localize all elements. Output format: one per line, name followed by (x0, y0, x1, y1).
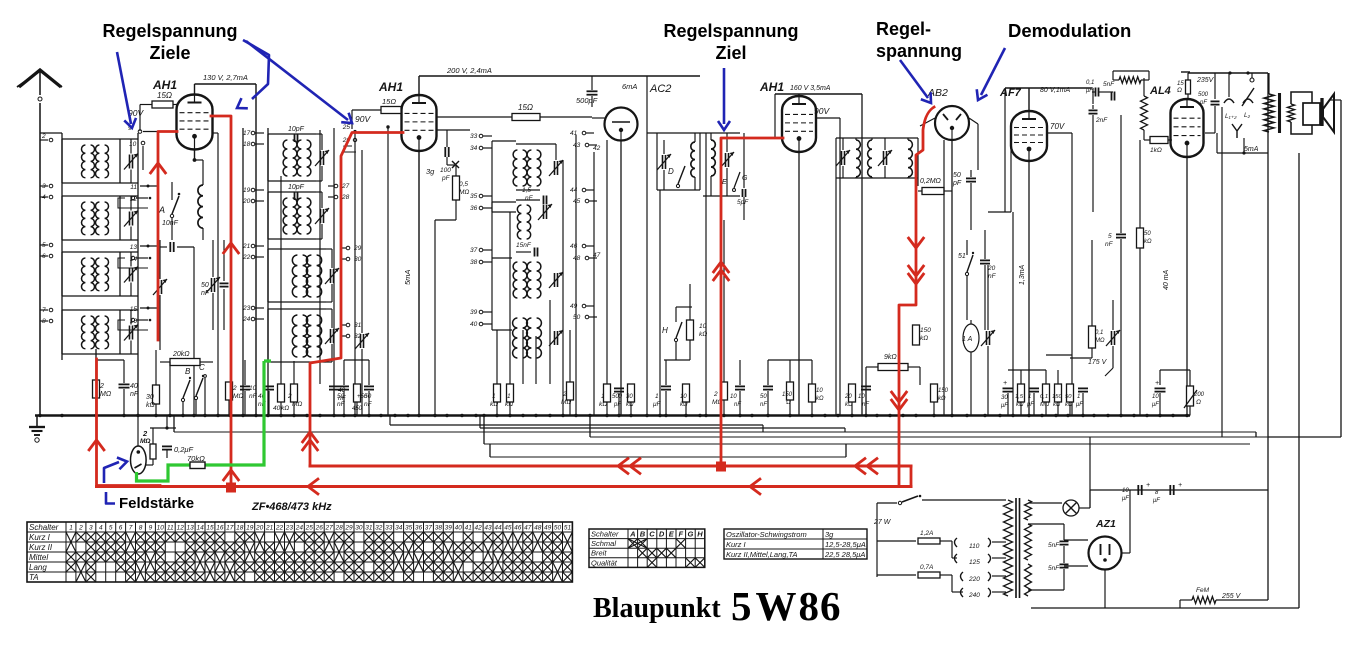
svg-text:11: 11 (167, 525, 174, 532)
svg-text:200: 200 (1193, 392, 1205, 398)
svg-text:D: D (659, 530, 665, 539)
svg-text:50: 50 (953, 172, 961, 179)
svg-text:16: 16 (216, 525, 224, 532)
svg-text:90V: 90V (355, 114, 371, 124)
svg-text:2: 2 (41, 133, 46, 140)
svg-text:1: 1 (69, 525, 73, 532)
svg-text:MΩ: MΩ (1095, 338, 1105, 344)
svg-text:44: 44 (494, 525, 502, 532)
svg-text:3g: 3g (825, 530, 834, 539)
svg-text:pF: pF (613, 402, 621, 408)
svg-text:40 mA: 40 mA (1163, 269, 1170, 290)
svg-text:130 V, 2,7mA: 130 V, 2,7mA (203, 73, 248, 82)
svg-text:41: 41 (465, 525, 473, 532)
svg-text:B: B (185, 367, 191, 376)
svg-text:B: B (640, 530, 646, 539)
svg-text:6: 6 (119, 525, 123, 532)
svg-text:18: 18 (243, 141, 251, 148)
svg-text:G: G (742, 175, 748, 182)
svg-text:1: 1 (655, 393, 659, 400)
svg-text:kΩ: kΩ (1016, 402, 1024, 408)
svg-text:kΩ: kΩ (920, 335, 928, 342)
svg-text:23: 23 (285, 525, 294, 532)
svg-text:AH1: AH1 (152, 78, 177, 92)
svg-text:10: 10 (249, 385, 257, 392)
svg-text:2: 2 (562, 391, 567, 398)
svg-text:μF: μF (1121, 496, 1129, 502)
svg-text:Ω: Ω (1177, 87, 1182, 94)
svg-text:10: 10 (730, 394, 737, 400)
svg-text:pF: pF (1199, 100, 1207, 106)
svg-text:nF: nF (525, 195, 534, 202)
svg-text:150: 150 (782, 392, 793, 398)
svg-text:8: 8 (139, 525, 143, 532)
svg-text:29: 29 (344, 525, 353, 532)
svg-text:34: 34 (470, 145, 478, 152)
svg-text:μF: μF (1075, 402, 1083, 408)
svg-text:22: 22 (242, 254, 251, 261)
svg-text:Regelspannung: Regelspannung (663, 21, 798, 41)
svg-text:23: 23 (242, 305, 251, 312)
svg-text:40: 40 (470, 321, 478, 328)
svg-text:32: 32 (375, 525, 383, 532)
svg-text:28: 28 (334, 525, 343, 532)
svg-text:2: 2 (78, 525, 83, 532)
svg-text:5W86: 5W86 (731, 583, 842, 629)
svg-text:5pF: 5pF (737, 199, 749, 206)
svg-text:4: 4 (42, 194, 46, 201)
svg-text:μF: μF (1151, 402, 1159, 408)
svg-text:μF: μF (1000, 403, 1008, 409)
svg-text:5nF: 5nF (1048, 565, 1060, 572)
svg-text:kΩ: kΩ (599, 401, 607, 408)
svg-text:26: 26 (315, 525, 324, 532)
svg-text:1: 1 (492, 393, 496, 400)
svg-text:40: 40 (130, 383, 138, 390)
svg-text:50: 50 (364, 393, 372, 400)
svg-text:24: 24 (295, 525, 304, 532)
svg-text:D: D (668, 167, 674, 176)
svg-text:kΩ: kΩ (699, 331, 707, 338)
svg-text:90V: 90V (814, 106, 830, 116)
svg-text:10: 10 (1122, 488, 1129, 494)
svg-text:2: 2 (713, 391, 718, 398)
svg-text:5: 5 (109, 525, 113, 532)
svg-text:kΩ: kΩ (146, 402, 156, 409)
svg-text:8: 8 (42, 318, 46, 325)
svg-text:kΩ: kΩ (1065, 402, 1073, 408)
svg-text:38: 38 (435, 525, 443, 532)
svg-text:10: 10 (1152, 394, 1159, 400)
svg-text:240: 240 (968, 592, 980, 599)
svg-text:15nF: 15nF (516, 242, 532, 249)
svg-text:9: 9 (149, 525, 153, 532)
svg-text:Kurz II,Mittel,Lang,TA: Kurz II,Mittel,Lang,TA (726, 550, 798, 559)
svg-text:0,5: 0,5 (459, 181, 468, 188)
svg-text:1,5: 1,5 (1015, 394, 1024, 400)
svg-text:pF: pF (952, 180, 962, 187)
svg-text:175 V: 175 V (1088, 359, 1108, 366)
svg-text:500: 500 (1198, 92, 1209, 98)
svg-text:2: 2 (99, 383, 104, 390)
svg-text:6: 6 (42, 253, 46, 260)
svg-text:500pF: 500pF (576, 96, 598, 105)
svg-text:nF: nF (249, 393, 258, 400)
svg-text:0,7A: 0,7A (920, 564, 933, 571)
svg-text:33: 33 (470, 133, 478, 140)
svg-text:Kurz I: Kurz I (29, 533, 51, 542)
svg-text:15: 15 (130, 306, 138, 313)
svg-text:nF: nF (1105, 241, 1114, 248)
svg-text:200 V, 2,4mA: 200 V, 2,4mA (446, 66, 492, 75)
svg-text:15Ω: 15Ω (157, 91, 172, 100)
svg-text:37: 37 (425, 525, 433, 532)
svg-text:30: 30 (146, 394, 154, 401)
svg-text:MΩ: MΩ (1040, 402, 1050, 408)
svg-text:10: 10 (699, 323, 707, 330)
svg-text:Lang: Lang (29, 563, 47, 572)
svg-text:C: C (649, 530, 655, 539)
svg-text:30: 30 (626, 394, 633, 400)
svg-text:35: 35 (470, 193, 478, 200)
svg-text:7: 7 (129, 525, 133, 532)
svg-text:10: 10 (157, 525, 165, 532)
svg-text:160 V 3,5mA: 160 V 3,5mA (790, 85, 831, 92)
svg-text:1,3mA: 1,3mA (1019, 264, 1026, 285)
svg-text:FeM: FeM (1196, 587, 1210, 594)
svg-text:100: 100 (440, 167, 451, 174)
svg-text:μF: μF (1152, 498, 1160, 504)
svg-text:kΩ: kΩ (938, 396, 946, 402)
svg-text:7: 7 (42, 307, 46, 314)
svg-text:2nF: 2nF (1095, 117, 1108, 124)
svg-text:C: C (199, 363, 205, 372)
svg-text:Schmal: Schmal (591, 539, 616, 548)
svg-text:AL4: AL4 (1149, 85, 1171, 97)
svg-text:L₁₊₂: L₁₊₂ (1225, 113, 1237, 120)
svg-text:AC2: AC2 (649, 83, 671, 95)
svg-text:Ziel: Ziel (715, 43, 746, 63)
svg-text:1: 1 (507, 393, 511, 400)
svg-text:AH1: AH1 (759, 80, 784, 94)
svg-text:47: 47 (524, 525, 532, 532)
svg-text:5nF: 5nF (1048, 542, 1060, 549)
svg-text:50: 50 (1065, 394, 1072, 400)
svg-text:15: 15 (206, 525, 214, 532)
svg-text:nF: nF (988, 273, 997, 280)
svg-text:10: 10 (816, 388, 823, 394)
svg-text:kΩ: kΩ (626, 402, 634, 408)
svg-text:1: 1 (1028, 394, 1031, 400)
svg-text:3g: 3g (426, 167, 435, 176)
svg-text:19: 19 (246, 525, 254, 532)
svg-text:50: 50 (554, 525, 562, 532)
svg-text:5nF: 5nF (1103, 81, 1115, 88)
svg-text:Ω: Ω (1196, 399, 1201, 406)
svg-text:12: 12 (177, 525, 185, 532)
svg-text:30: 30 (355, 525, 363, 532)
svg-text:21: 21 (242, 243, 251, 250)
svg-text:μF: μF (1026, 402, 1034, 408)
svg-text:220: 220 (968, 576, 980, 583)
svg-text:ZF•468/473 kHz: ZF•468/473 kHz (251, 501, 332, 513)
svg-text:1: 1 (601, 393, 605, 400)
svg-text:25: 25 (342, 124, 351, 131)
svg-text:Breit: Breit (591, 549, 607, 558)
svg-text:MΩ: MΩ (459, 189, 469, 196)
svg-text:51: 51 (958, 253, 966, 260)
svg-text:50: 50 (573, 314, 581, 321)
svg-text:12,5-28,5μA: 12,5-28,5μA (825, 540, 866, 549)
svg-text:10: 10 (858, 394, 865, 400)
svg-text:45: 45 (573, 198, 581, 205)
svg-text:AH1: AH1 (378, 80, 403, 94)
svg-text:20kΩ: 20kΩ (172, 351, 190, 358)
svg-text:Oszillator-Schwingstrom: Oszillator-Schwingstrom (726, 530, 807, 539)
svg-text:235V: 235V (1196, 77, 1215, 84)
svg-text:H: H (662, 326, 668, 335)
svg-text:14: 14 (196, 525, 204, 532)
svg-text:125: 125 (969, 559, 980, 566)
svg-text:10: 10 (680, 394, 687, 400)
svg-text:E: E (722, 179, 727, 186)
svg-text:Mittel: Mittel (29, 553, 48, 562)
svg-text:μF: μF (1085, 88, 1093, 94)
svg-text:0,1: 0,1 (1040, 394, 1048, 400)
svg-text:1 A: 1 A (962, 336, 973, 343)
svg-text:Schalter: Schalter (591, 530, 619, 539)
svg-text:24: 24 (242, 316, 251, 323)
svg-text:30: 30 (1001, 395, 1008, 401)
svg-text:50: 50 (1144, 231, 1151, 237)
svg-text:Feldstärke: Feldstärke (119, 495, 194, 512)
svg-text:3: 3 (42, 183, 46, 190)
svg-text:20: 20 (844, 394, 852, 400)
svg-text:6mA: 6mA (622, 82, 637, 91)
svg-text:25: 25 (305, 525, 314, 532)
svg-text:27 W: 27 W (873, 519, 892, 526)
svg-text:49: 49 (544, 525, 552, 532)
svg-text:5: 5 (42, 242, 46, 249)
svg-text:37: 37 (470, 247, 478, 254)
svg-text:MΩ: MΩ (233, 393, 243, 400)
svg-text:20: 20 (255, 525, 264, 532)
svg-text:10nF: 10nF (162, 220, 179, 227)
svg-text:1: 1 (1077, 394, 1080, 400)
svg-text:nF: nF (130, 391, 139, 398)
svg-text:13: 13 (130, 244, 138, 251)
svg-text:70V: 70V (1050, 122, 1065, 131)
svg-text:43: 43 (484, 525, 492, 532)
svg-text:20: 20 (242, 198, 251, 205)
svg-text:Demodulation: Demodulation (1008, 20, 1131, 41)
svg-text:50: 50 (201, 282, 209, 289)
svg-text:33: 33 (385, 525, 393, 532)
svg-text:5: 5 (1108, 233, 1112, 240)
svg-text:0,1: 0,1 (1086, 80, 1094, 86)
svg-text:nF: nF (364, 401, 373, 408)
svg-text:1,2A: 1,2A (920, 530, 933, 537)
svg-text:Regelspannung: Regelspannung (102, 21, 237, 41)
svg-text:21: 21 (265, 525, 274, 532)
svg-text:0,2MΩ: 0,2MΩ (920, 178, 942, 185)
svg-text:38: 38 (470, 259, 478, 266)
svg-text:0,1: 0,1 (1095, 330, 1103, 336)
svg-text:+: + (1178, 482, 1182, 489)
svg-text:15Ω: 15Ω (382, 97, 396, 106)
svg-text:H: H (697, 530, 703, 539)
svg-text:4: 4 (99, 525, 103, 532)
svg-text:15Ω: 15Ω (518, 103, 533, 112)
svg-text:29: 29 (353, 245, 362, 252)
svg-text:9kΩ: 9kΩ (884, 354, 897, 361)
svg-text:TA: TA (29, 573, 39, 582)
svg-text:22: 22 (275, 525, 284, 532)
svg-text:2: 2 (287, 393, 292, 400)
svg-text:31: 31 (365, 525, 373, 532)
svg-text:17: 17 (226, 525, 234, 532)
svg-text:G: G (687, 530, 693, 539)
svg-text:10pF: 10pF (288, 184, 305, 191)
svg-text:Kurz I: Kurz I (726, 540, 746, 549)
svg-text:kΩ: kΩ (281, 405, 289, 412)
svg-text:110: 110 (969, 543, 980, 550)
svg-text:11: 11 (130, 184, 137, 191)
svg-text:kΩ: kΩ (1053, 402, 1061, 408)
svg-text:10: 10 (129, 141, 137, 148)
svg-text:5mA: 5mA (1244, 146, 1259, 153)
svg-text:kΩ: kΩ (816, 396, 824, 402)
svg-text:5mA: 5mA (403, 270, 412, 285)
svg-text:19: 19 (243, 187, 251, 194)
svg-text:42: 42 (474, 525, 482, 532)
svg-text:AF7: AF7 (999, 87, 1022, 99)
svg-text:+: + (1155, 380, 1159, 387)
svg-text:46: 46 (514, 525, 522, 532)
svg-text:pF: pF (441, 175, 451, 182)
svg-text:1kΩ: 1kΩ (1150, 147, 1162, 154)
svg-text:51: 51 (564, 525, 572, 532)
svg-text:150: 150 (938, 388, 949, 394)
svg-text:spannung: spannung (876, 41, 962, 61)
svg-text:39: 39 (445, 525, 453, 532)
svg-text:80 V,1mA: 80 V,1mA (1040, 87, 1071, 94)
svg-text:A: A (629, 530, 635, 539)
svg-text:Qualität: Qualität (591, 558, 618, 567)
svg-text:nF: nF (760, 402, 767, 408)
svg-text:48: 48 (534, 525, 542, 532)
svg-text:1,5: 1,5 (522, 187, 531, 194)
svg-text:34: 34 (395, 525, 403, 532)
svg-text:35: 35 (405, 525, 413, 532)
svg-text:+: + (1003, 380, 1007, 387)
svg-text:39: 39 (470, 309, 478, 316)
svg-text:0,2μF: 0,2μF (174, 445, 194, 454)
svg-text:Ziele: Ziele (149, 43, 190, 63)
svg-text:150: 150 (1052, 394, 1062, 400)
svg-text:kΩ: kΩ (505, 401, 513, 408)
svg-text:42: 42 (593, 145, 601, 152)
svg-text:36: 36 (470, 205, 478, 212)
svg-text:255 V: 255 V (1221, 593, 1242, 600)
svg-text:AZ1: AZ1 (1095, 518, 1116, 530)
svg-text:F: F (679, 530, 684, 539)
svg-text:43: 43 (573, 142, 581, 149)
svg-text:μF: μF (652, 401, 662, 408)
svg-text:MΩ: MΩ (140, 438, 151, 445)
svg-text:48: 48 (573, 255, 581, 262)
svg-text:22,5 28,5μA: 22,5 28,5μA (824, 550, 865, 559)
svg-text:17: 17 (243, 130, 251, 137)
svg-text:150: 150 (920, 327, 931, 334)
svg-text:40: 40 (455, 525, 463, 532)
svg-text:Regel-: Regel- (876, 19, 931, 39)
svg-text:3: 3 (89, 525, 93, 532)
svg-text:+: + (1146, 482, 1150, 489)
svg-text:50: 50 (760, 394, 767, 400)
svg-text:L₂: L₂ (1244, 112, 1251, 119)
svg-text:2: 2 (232, 385, 237, 392)
svg-text:MΩ: MΩ (100, 391, 112, 398)
svg-text:Schalter: Schalter (29, 523, 59, 532)
svg-text:36: 36 (415, 525, 423, 532)
svg-text:45: 45 (504, 525, 512, 532)
svg-text:Kurz II: Kurz II (29, 543, 53, 552)
svg-text:Blaupunkt: Blaupunkt (593, 593, 721, 624)
svg-text:27: 27 (324, 525, 333, 532)
svg-text:kΩ: kΩ (680, 402, 688, 408)
svg-text:40: 40 (273, 405, 281, 412)
svg-text:2: 2 (142, 429, 148, 438)
svg-text:13: 13 (186, 525, 194, 532)
svg-text:18: 18 (236, 525, 244, 532)
svg-text:10pF: 10pF (288, 126, 305, 133)
svg-text:kΩ: kΩ (1144, 239, 1152, 245)
